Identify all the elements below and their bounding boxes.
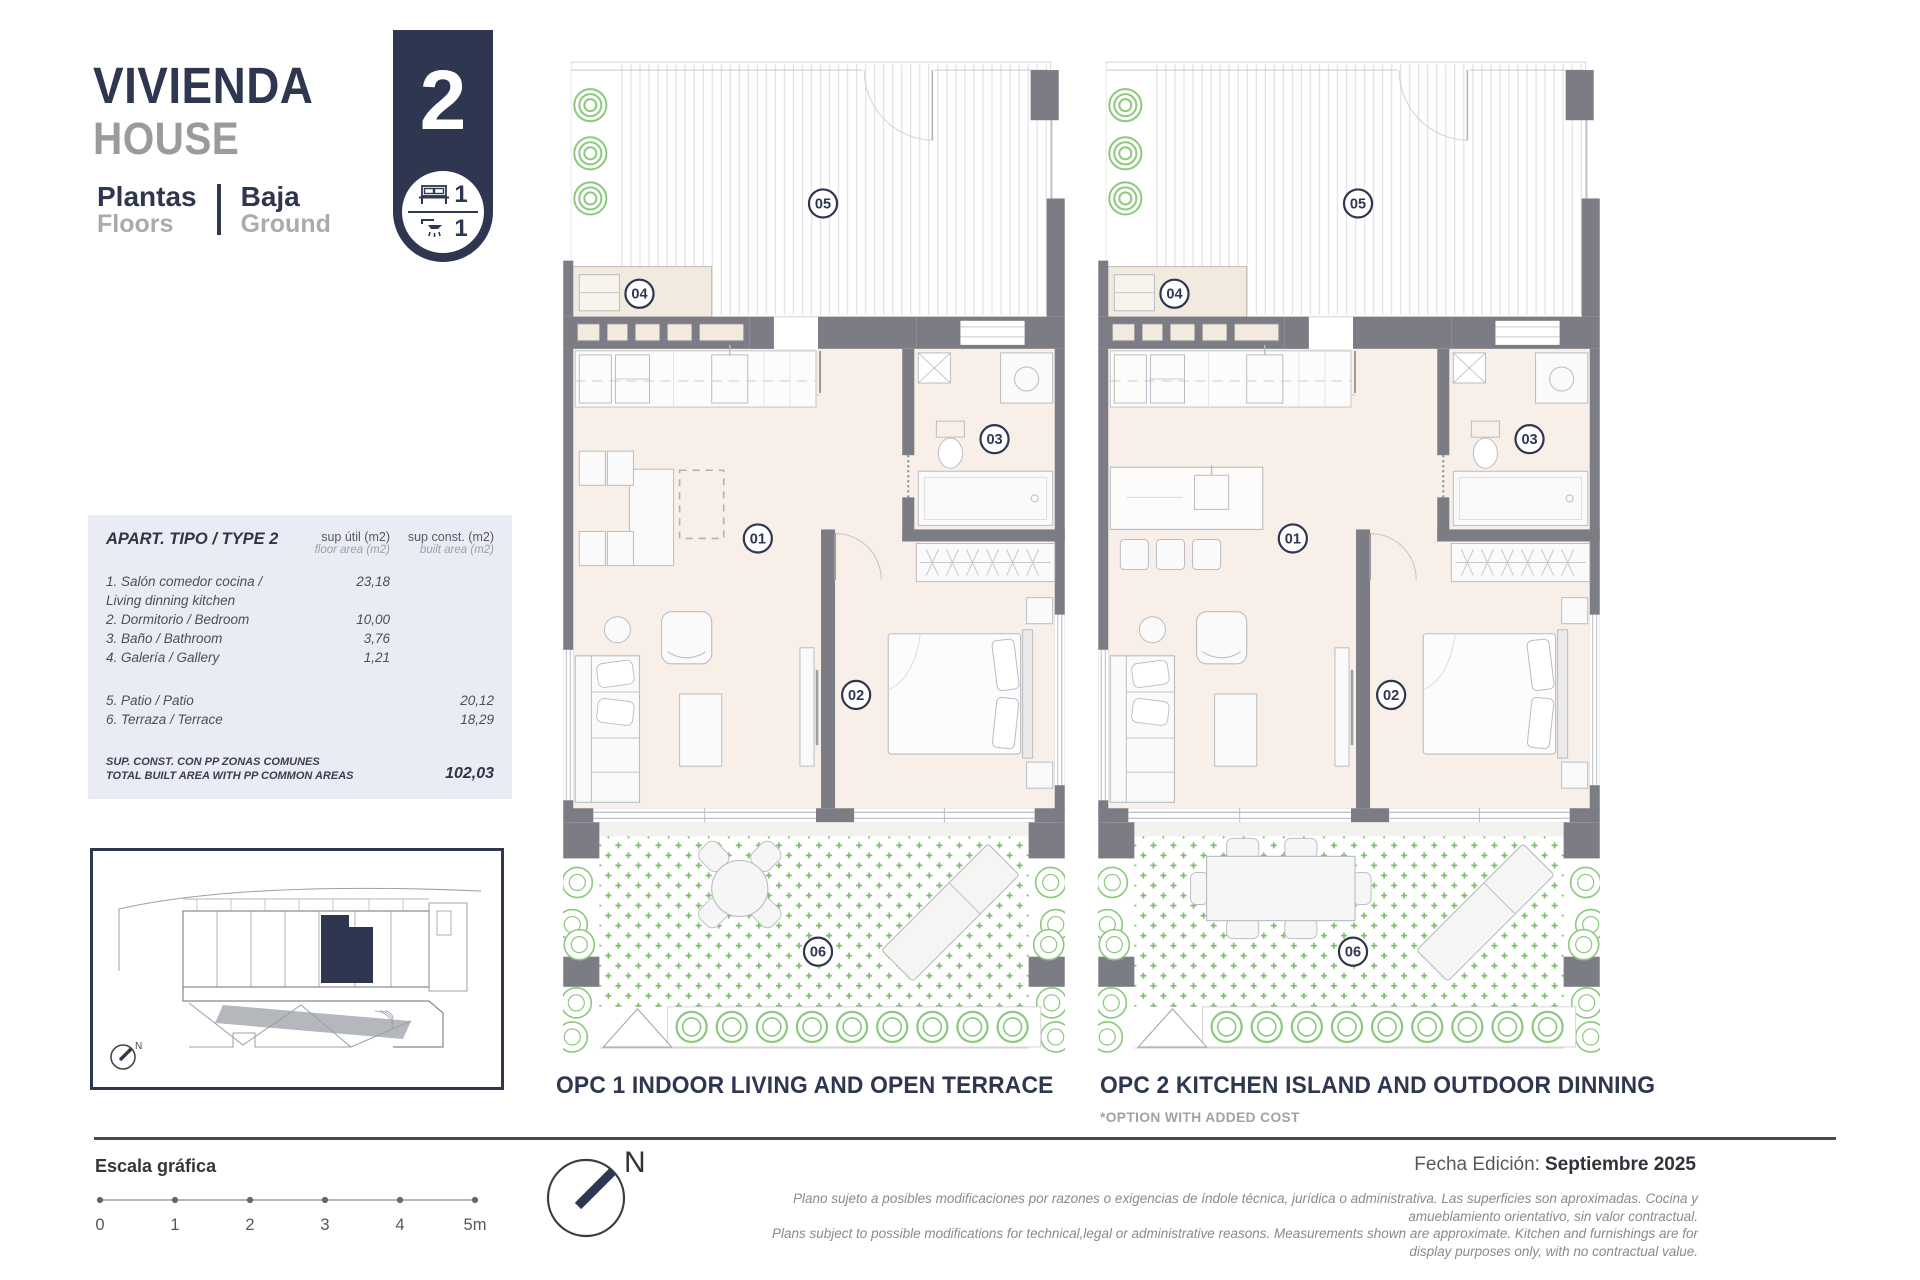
plan-caption-opc2-block: OPC 2 KITCHEN ISLAND AND OUTDOOR DINNING… [1100,1072,1684,1125]
planter-icon [1332,1012,1362,1042]
table-row: 4. Galería / Gallery1,21 [106,648,494,667]
scale-label: Escala gráfica [95,1156,216,1177]
built-area-value [390,572,494,610]
scale-tick: 0 [95,1216,104,1234]
svg-text:03: 03 [986,432,1002,448]
planter-icon [1533,1012,1563,1042]
svg-text:N: N [135,1041,142,1052]
bed-icon [418,184,450,206]
table-row: 3. Baño / Bathroom3,76 [106,629,494,648]
room-label-bedroom: 02 [842,681,870,709]
planter-icon [1292,1012,1322,1042]
shrub-icon [1098,867,1127,897]
room-label-terrace: 06 [804,938,832,966]
room-label-gallery: 04 [625,280,653,308]
scale-tick: 5m [464,1216,487,1234]
row-name: 1. Salón comedor cocina / Living dinning… [106,572,294,610]
north-label: N [624,1146,646,1179]
room-label-bathroom: 03 [1515,425,1543,453]
planter-icon [837,1012,867,1042]
page-title-en: HOUSE [93,116,313,161]
planter-icon [797,1012,827,1042]
planter-icon [1412,1012,1442,1042]
floor-value-en: Ground [241,211,331,239]
floors-label-en: Floors [97,211,197,239]
floor-area-value: 1,21 [294,648,390,667]
total-built-area-value: 102,03 [390,765,494,783]
room-label-gallery: 04 [1160,280,1188,308]
planter-icon [957,1012,987,1042]
svg-text:06: 06 [810,945,826,961]
svg-text:01: 01 [750,531,766,547]
room-label-terrace: 06 [1339,938,1367,966]
room-label-patio: 05 [1344,189,1372,217]
plan-caption-opc2: OPC 2 KITCHEN ISLAND AND OUTDOOR DINNING [1100,1072,1655,1100]
floors-divider [217,184,221,235]
plan-caption-opc1-block: OPC 1 INDOOR LIVING AND OPEN TERRACE [556,1072,1080,1100]
page-title: VIVIENDA [93,60,313,111]
area-table: APART. TIPO / TYPE 2 sup útil (m2) floor… [88,515,512,799]
built-area-value: 20,12 [390,691,494,710]
svg-text:04: 04 [631,287,647,303]
row-name: 2. Dormitorio / Bedroom [106,610,294,629]
kitchen-counter [575,345,816,407]
area-table-total: SUP. CONST. CON PP ZONAS COMUNES TOTAL B… [106,755,494,783]
shrub-icon [1576,1022,1600,1052]
floor-area-value: 23,18 [294,572,390,610]
total-label-es: SUP. CONST. CON PP ZONAS COMUNES [106,755,390,769]
svg-text:03: 03 [1521,432,1537,448]
room-label-living: 01 [744,524,772,552]
shrub-icon [1571,867,1600,897]
planter-icon [1252,1012,1282,1042]
row-name: 4. Galería / Gallery [106,648,294,667]
floor-area-value [294,691,390,710]
floor-plan-opc1: 010203040506 [563,48,1065,1061]
planter-icon [1212,1012,1242,1042]
row-name: 5. Patio / Patio [106,691,294,710]
wardrobe [916,543,1054,581]
floor-value: Baja [241,182,331,211]
table-row: 6. Terraza / Terrace18,29 [106,710,494,729]
wardrobe [1451,543,1589,581]
floor-area-value [294,710,390,729]
planter-icon [677,1012,707,1042]
site-plan-map: N [93,851,501,1087]
svg-text:05: 05 [815,196,831,212]
svg-text:02: 02 [848,688,864,704]
row-name: 6. Terraza / Terrace [106,710,294,729]
scale-tick: 2 [245,1216,254,1234]
bathroom-count: 1 [454,217,467,241]
floors-block: Plantas Floors Baja Ground [97,182,331,239]
planter-icon [757,1012,787,1042]
planter-icon [1372,1012,1402,1042]
bedroom-count: 1 [454,183,467,207]
svg-text:01: 01 [1285,531,1301,547]
room-label-bathroom: 03 [980,425,1008,453]
patio-area [1098,62,1599,317]
scale-tick: 1 [170,1216,179,1234]
edition-label: Fecha Edición: [1414,1154,1540,1175]
built-area-value [390,648,494,667]
table-row: 5. Patio / Patio20,12 [106,691,494,710]
shrub-icon [1041,1022,1065,1052]
kitchen-counter [1110,345,1351,407]
svg-text:06: 06 [1345,945,1361,961]
site-plan-box: N [90,848,504,1090]
north-compass: N [540,1146,650,1246]
edition-date: Fecha Edición:Septiembre 2025 [1400,1154,1696,1176]
shrub-icon [1569,930,1599,960]
col-header-built-area: sup const. (m2) built area (m2) [390,530,494,556]
svg-text:05: 05 [1350,196,1366,212]
room-label-bedroom: 02 [1377,681,1405,709]
floor-area-value: 10,00 [294,610,390,629]
area-table-rows: 1. Salón comedor cocina / Living dinning… [106,572,494,729]
disclaimer-line-es: Plano sujeto a posibles modificaciones p… [738,1190,1698,1225]
planter-icon [1492,1012,1522,1042]
total-label-en: TOTAL BUILT AREA WITH PP COMMON AREAS [106,769,390,783]
planter-icon [998,1012,1028,1042]
shrub-icon [1034,930,1064,960]
scale-bar: 012345m [86,1186,506,1242]
disclaimer: Plano sujeto a posibles modificaciones p… [738,1190,1698,1260]
scale-tick: 3 [320,1216,329,1234]
row-name: 3. Baño / Bathroom [106,629,294,648]
edition-value: Septiembre 2025 [1545,1154,1696,1175]
plan-caption-opc1: OPC 1 INDOOR LIVING AND OPEN TERRACE [556,1072,1054,1100]
shrub-icon [1098,988,1126,1018]
shrub-icon [563,988,591,1018]
col-header-floor-area: sup útil (m2) floor area (m2) [294,530,390,556]
shrub-icon [564,930,594,960]
footer-separator [94,1137,1836,1140]
patio-area [563,62,1064,317]
room-label-patio: 05 [809,189,837,217]
svg-text:04: 04 [1166,287,1182,303]
scale-tick: 4 [395,1216,404,1234]
floors-label: Plantas [97,182,197,211]
built-area-value [390,610,494,629]
shrub-icon [1036,867,1065,897]
svg-text:02: 02 [1383,688,1399,704]
room-label-living: 01 [1279,524,1307,552]
table-row: 1. Salón comedor cocina / Living dinning… [106,572,494,610]
badge-stats-circle: 1 1 [398,167,488,257]
built-area-value: 18,29 [390,710,494,729]
table-row: 2. Dormitorio / Bedroom10,00 [106,610,494,629]
shrub-icon [563,867,592,897]
disclaimer-line-en: Plans subject to possible modifications … [738,1225,1698,1260]
area-table-title: APART. TIPO / TYPE 2 [106,530,294,549]
type-badge-number: 2 [393,58,493,142]
title-block: VIVIENDA HOUSE [93,60,338,161]
shrub-icon [1099,930,1129,960]
shrub-icon [563,1022,587,1052]
table-group-gap [106,667,494,691]
planter-icon [1452,1012,1482,1042]
built-area-value [390,629,494,648]
floor-area-value: 3,76 [294,629,390,648]
shrub-icon [1098,1022,1122,1052]
planter-icon [917,1012,947,1042]
shower-icon [418,217,450,241]
plan-sheet-page: { "header": { "title_primary": "VIVIENDA… [0,0,1920,1280]
plan-note-opc2: *OPTION WITH ADDED COST [1100,1109,1673,1125]
planter-icon [717,1012,747,1042]
floor-plan-opc2: 010203040506 [1098,48,1600,1061]
planter-icon [877,1012,907,1042]
type-badge: 2 1 1 [393,30,493,262]
